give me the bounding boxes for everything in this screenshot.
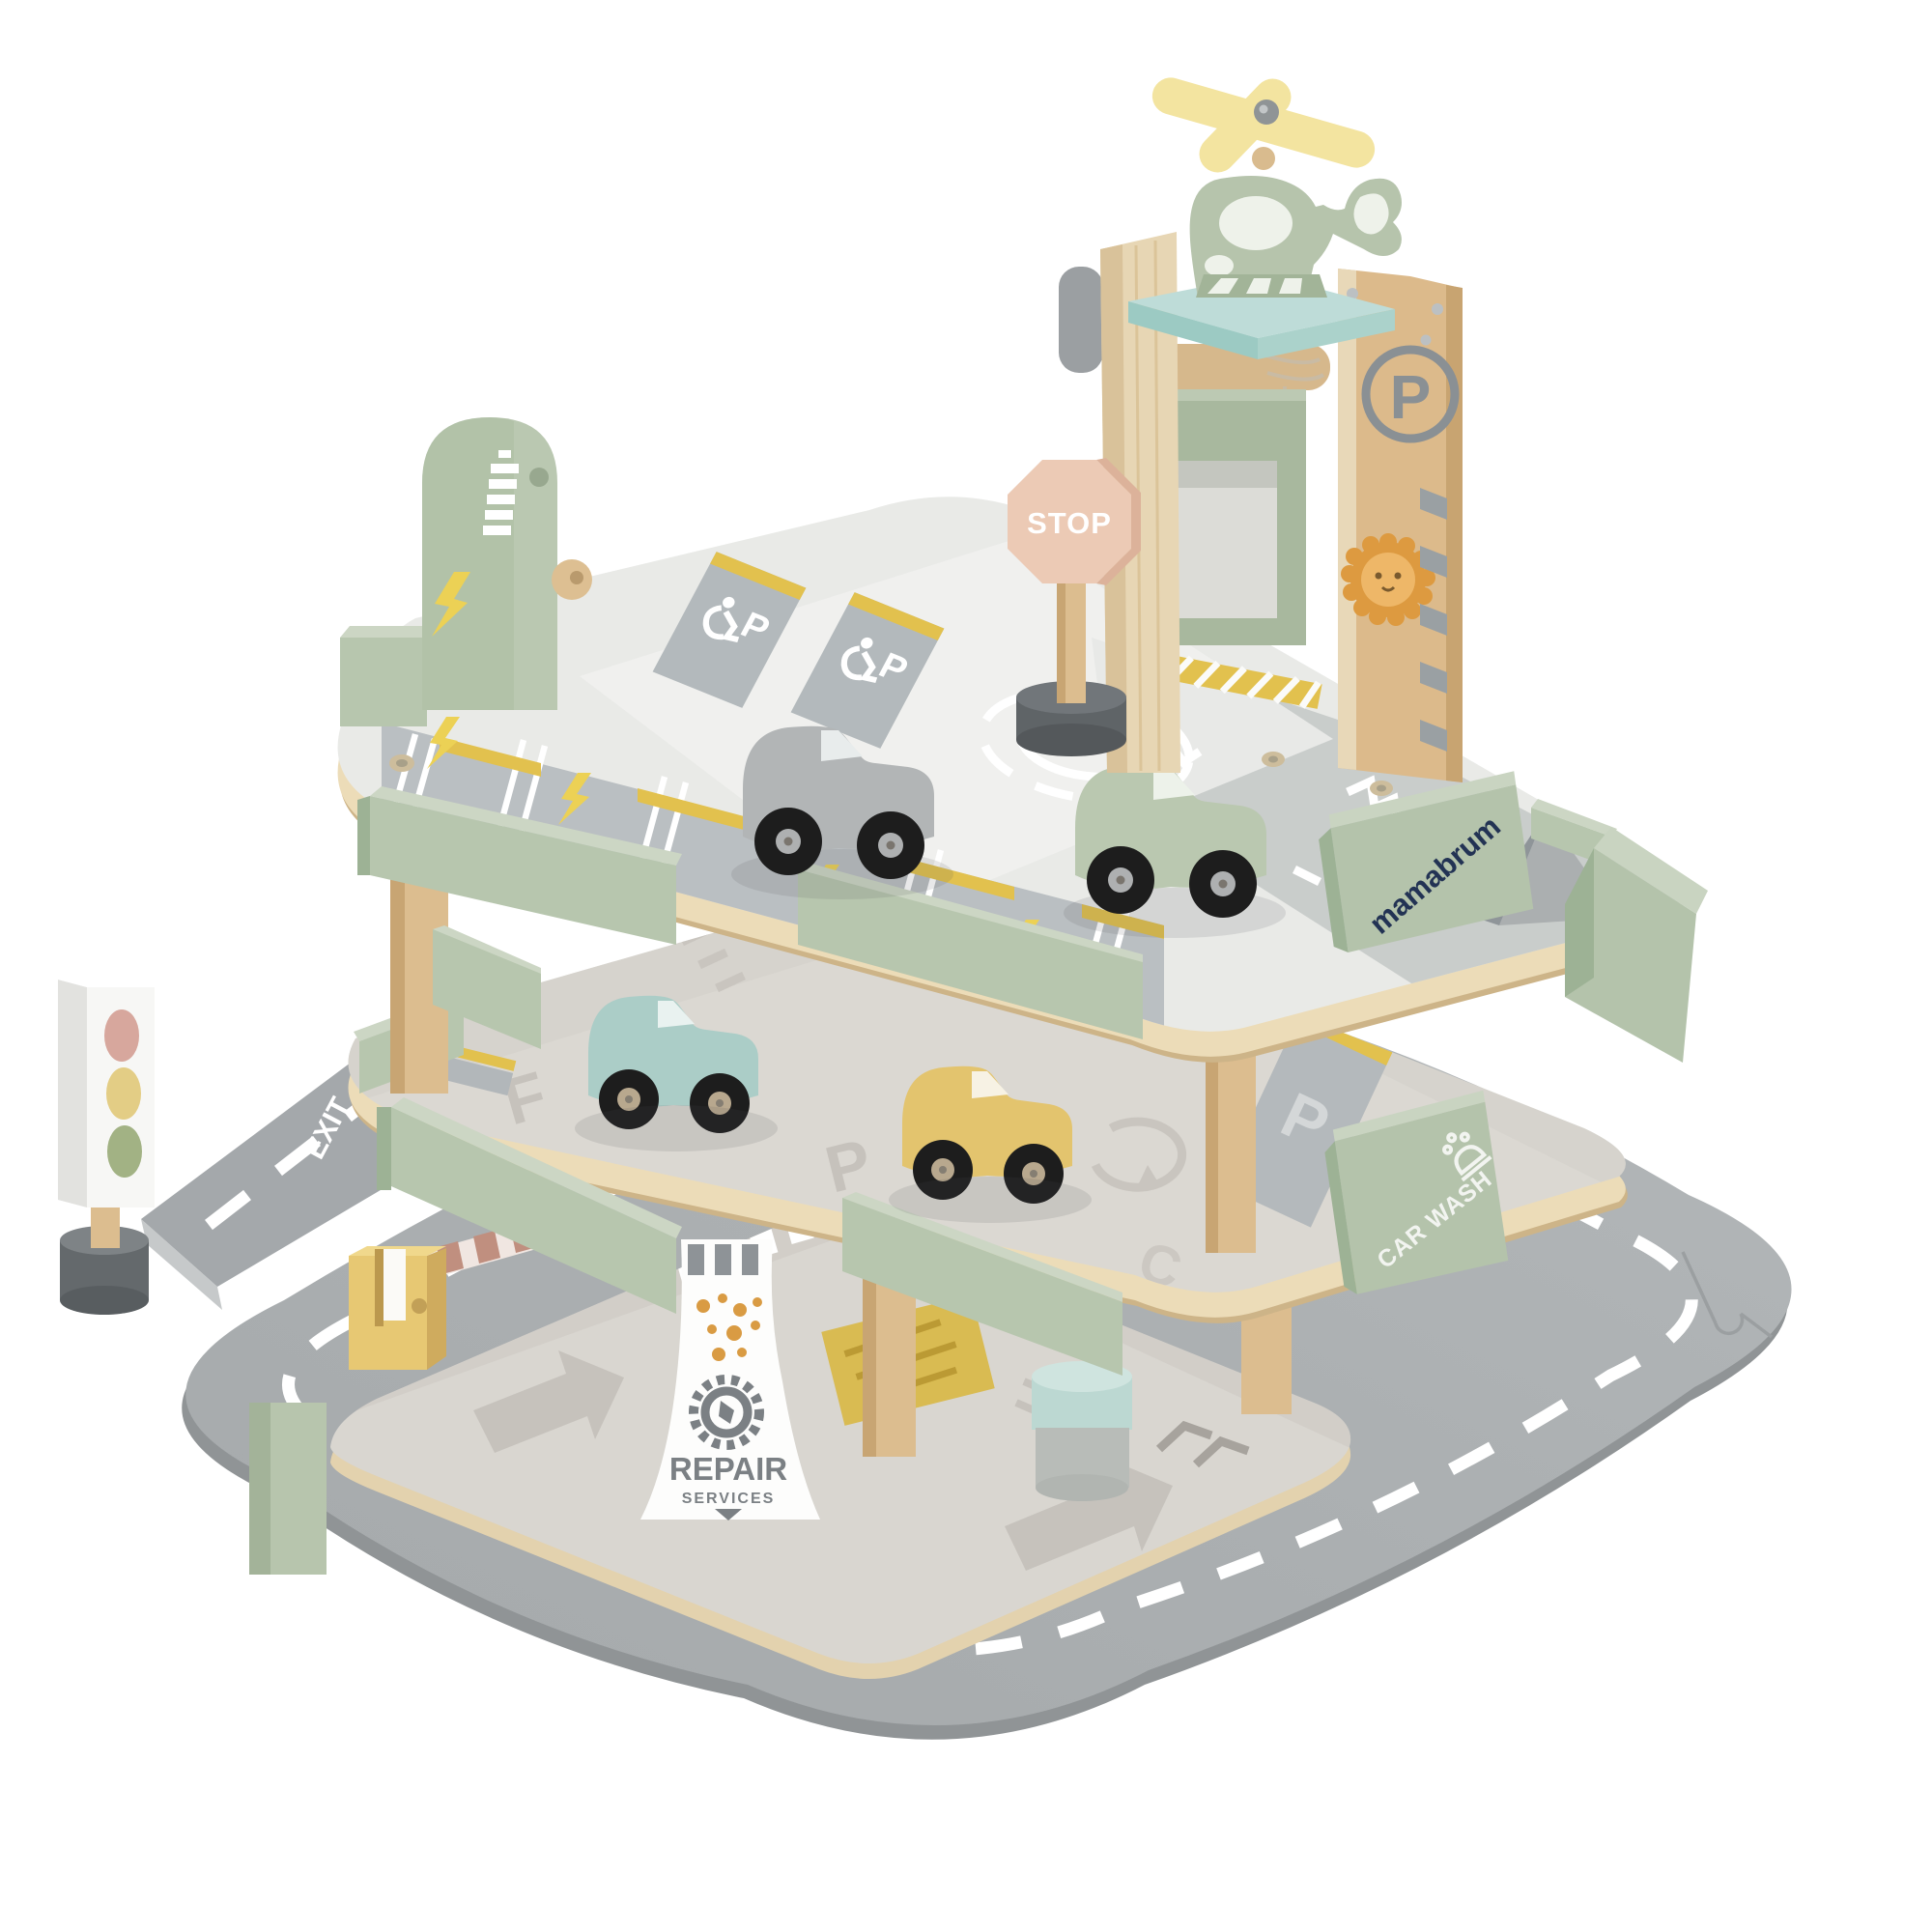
svg-text:STOP: STOP <box>1027 506 1112 540</box>
svg-text:REPAIR: REPAIR <box>669 1451 787 1487</box>
svg-text:P: P <box>1390 362 1432 432</box>
svg-text:SERVICES: SERVICES <box>682 1491 776 1507</box>
